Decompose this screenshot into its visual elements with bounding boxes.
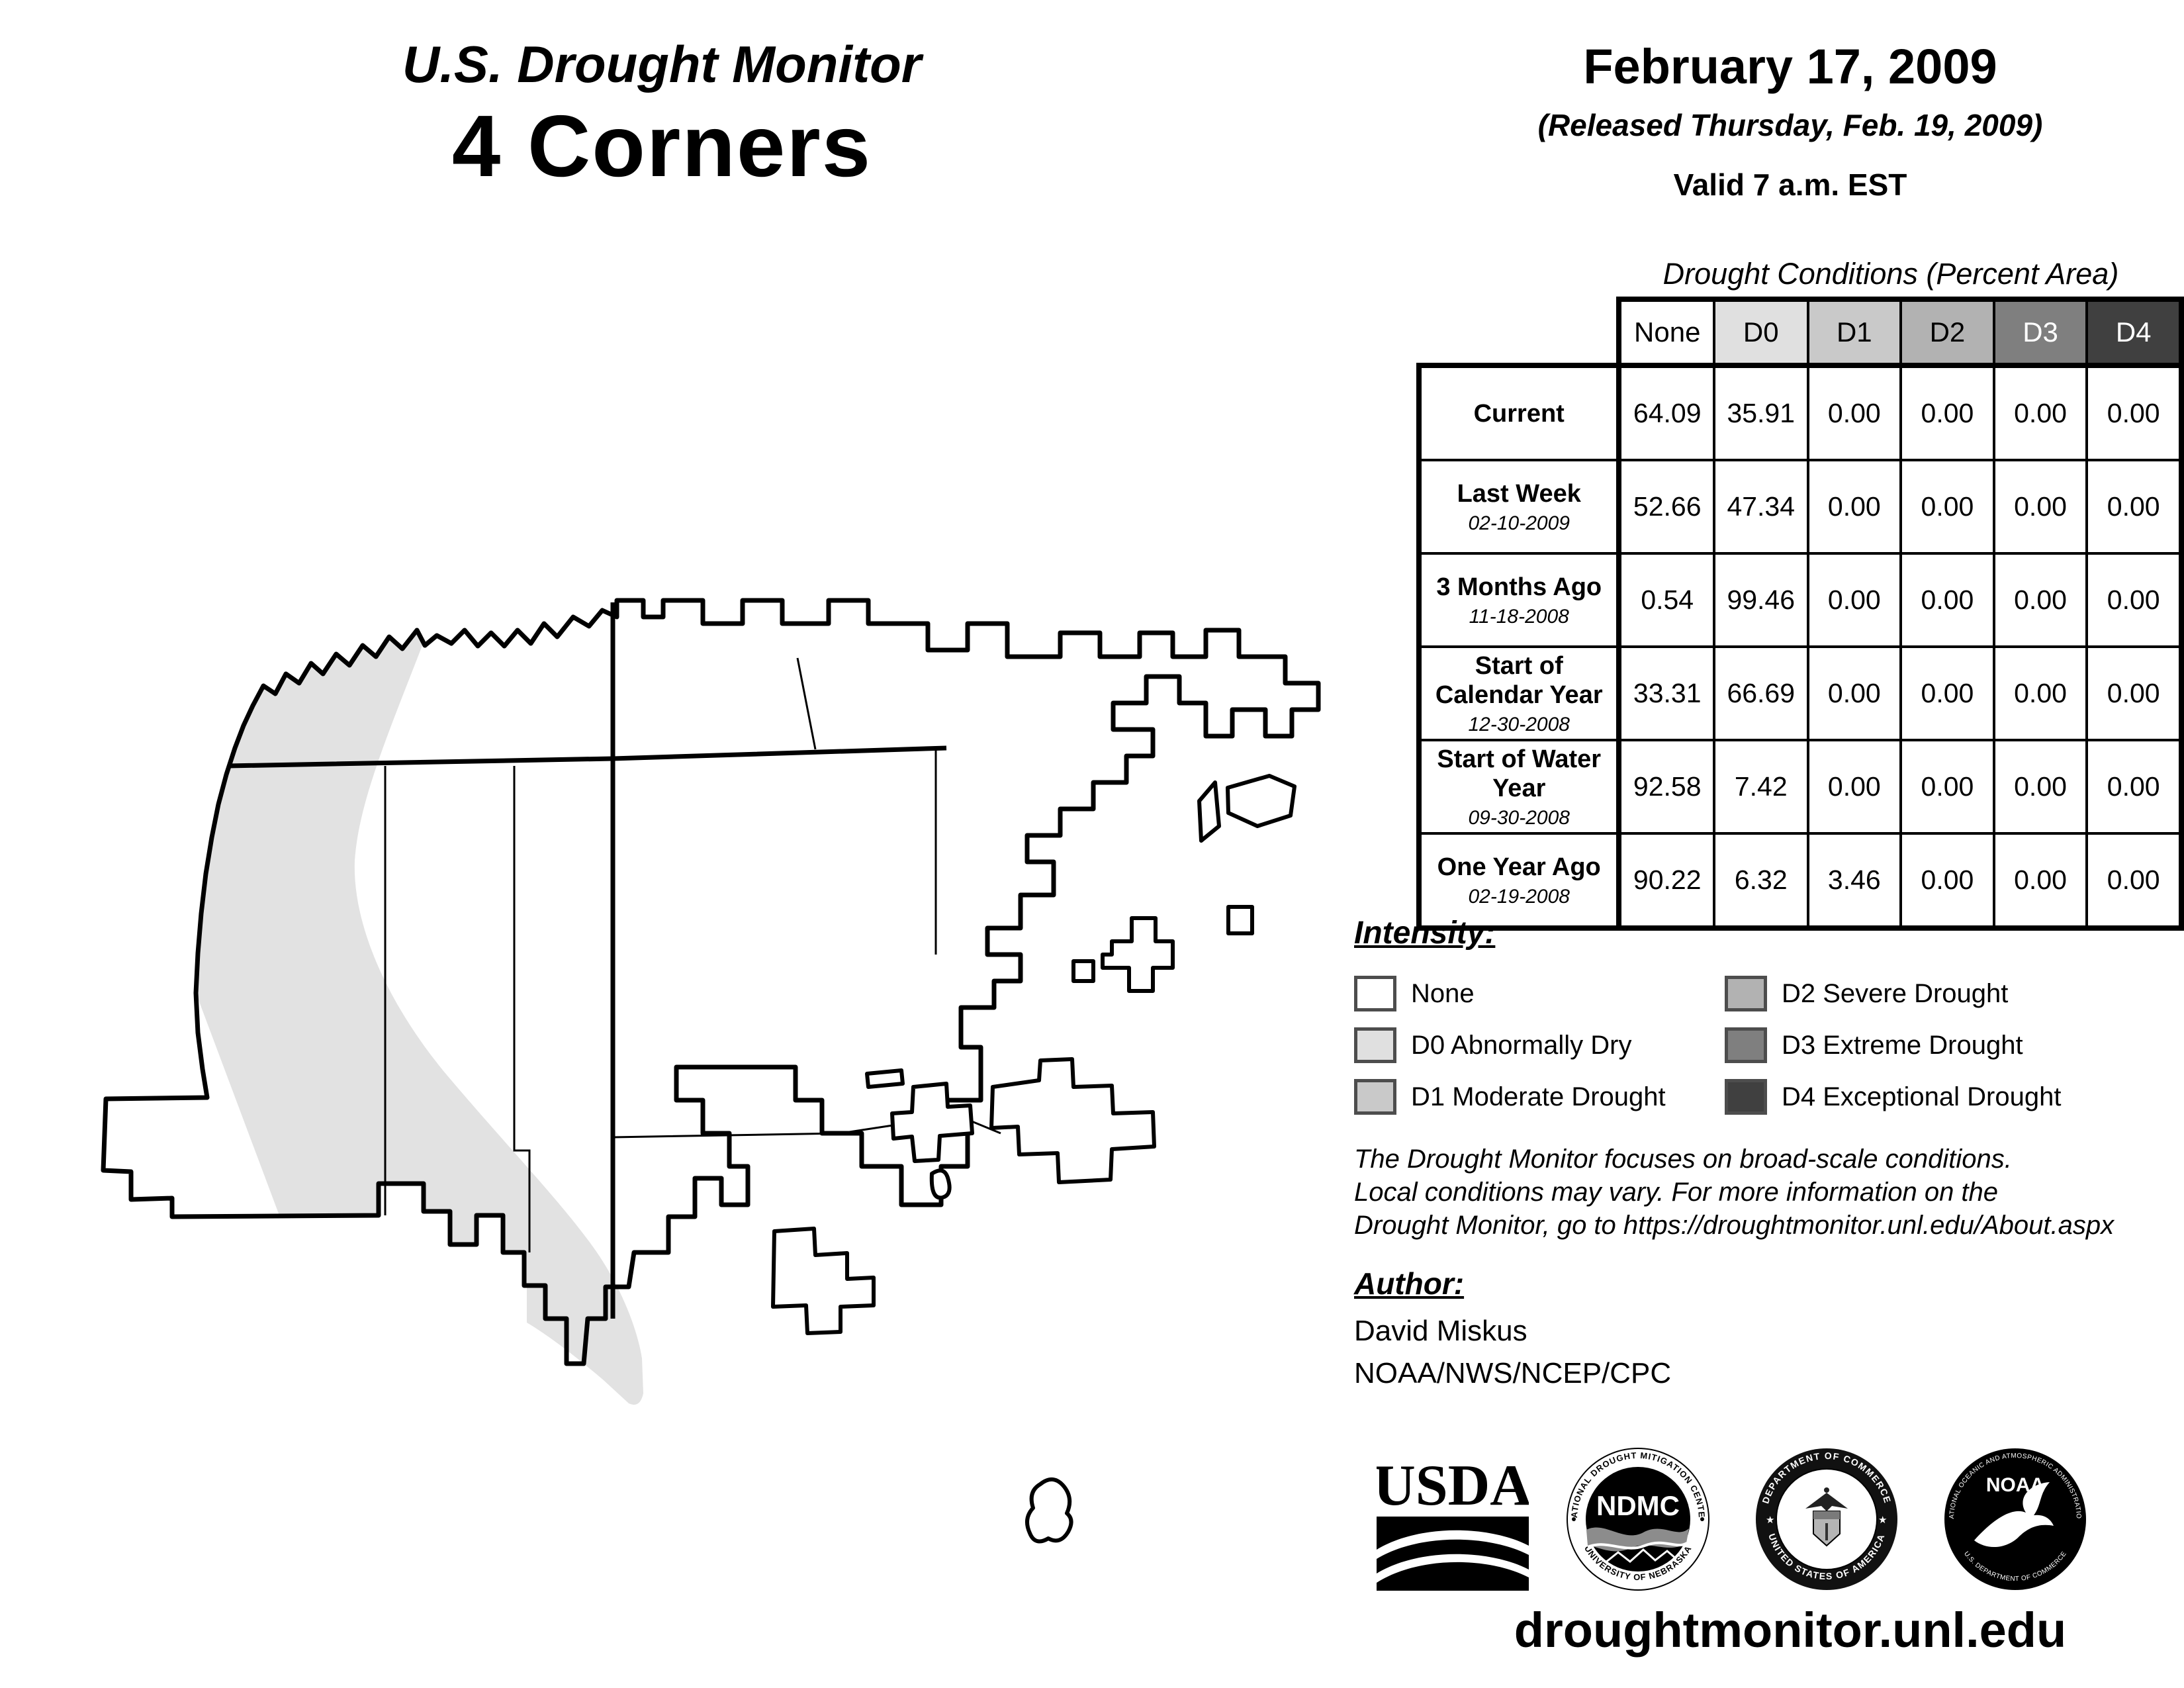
doc-star-left: ★ xyxy=(1766,1515,1774,1526)
disclaimer-line: Drought Monitor, go to https://droughtmo… xyxy=(1354,1209,2181,1242)
value-cell: 0.00 xyxy=(1901,365,1994,460)
release-date: (Released Thursday, Feb. 19, 2009) xyxy=(1416,107,2164,143)
table-corner-cell xyxy=(1419,299,1619,365)
value-cell: 0.00 xyxy=(1808,365,1901,460)
table-row: One Year Ago02-19-2008 90.22 6.32 3.46 0… xyxy=(1419,833,2181,928)
drought-map xyxy=(79,583,1337,1615)
legend-item-d3: D3 Extreme Drought xyxy=(1725,1019,2184,1071)
legend-swatch-d1 xyxy=(1354,1079,1396,1115)
author-name: David Miskus xyxy=(1354,1315,1527,1348)
legend-label: None xyxy=(1411,979,1475,1009)
value-cell: 0.54 xyxy=(1619,553,1714,647)
website-url: droughtmonitor.unl.edu xyxy=(1416,1602,2164,1658)
value-cell: 0.00 xyxy=(2087,460,2181,553)
map-date: February 17, 2009 xyxy=(1416,38,2164,95)
ndmc-logo: NATIONAL DROUGHT MITIGATION CENTER UNIVE… xyxy=(1565,1446,1711,1592)
value-cell: 0.00 xyxy=(1808,553,1901,647)
value-cell: 52.66 xyxy=(1619,460,1714,553)
table-caption: Drought Conditions (Percent Area) xyxy=(1615,257,2167,291)
legend-item-none: None xyxy=(1354,968,1725,1019)
value-cell: 90.22 xyxy=(1619,833,1714,928)
table-row: Start of Calendar Year12-30-2008 33.31 6… xyxy=(1419,647,2181,740)
value-cell: 0.00 xyxy=(1994,833,2087,928)
legend-swatch-none xyxy=(1354,976,1396,1011)
value-cell: 0.00 xyxy=(1994,553,2087,647)
legend-heading: Intensity: xyxy=(1354,915,1495,951)
col-header-d1: D1 xyxy=(1808,299,1901,365)
value-cell: 35.91 xyxy=(1714,365,1808,460)
legend-swatch-d2 xyxy=(1725,976,1767,1011)
doc-star-right: ★ xyxy=(1878,1515,1887,1526)
col-header-d2: D2 xyxy=(1901,299,1994,365)
value-cell: 0.00 xyxy=(2087,740,2181,833)
legend-label: D2 Severe Drought xyxy=(1782,979,2008,1009)
value-cell: 0.00 xyxy=(1901,553,1994,647)
value-cell: 3.46 xyxy=(1808,833,1901,928)
value-cell: 7.42 xyxy=(1714,740,1808,833)
usda-wordmark: USDA xyxy=(1377,1454,1529,1518)
value-cell: 0.00 xyxy=(1808,740,1901,833)
legend-item-d1: D1 Moderate Drought xyxy=(1354,1071,1725,1123)
value-cell: 0.00 xyxy=(2087,833,2181,928)
value-cell: 0.00 xyxy=(1901,460,1994,553)
value-cell: 0.00 xyxy=(1994,365,2087,460)
row-label-cell: One Year Ago02-19-2008 xyxy=(1419,833,1619,928)
legend-swatch-d0 xyxy=(1354,1027,1396,1063)
legend-item-d0: D0 Abnormally Dry xyxy=(1354,1019,1725,1071)
value-cell: 64.09 xyxy=(1619,365,1714,460)
legend: None D0 Abnormally Dry D1 Moderate Droug… xyxy=(1354,968,2184,1123)
usda-logo: USDA xyxy=(1377,1453,1529,1595)
value-cell: 0.00 xyxy=(1901,833,1994,928)
row-label-cell: Current xyxy=(1419,365,1619,460)
value-cell: 0.00 xyxy=(2087,365,2181,460)
value-cell: 0.00 xyxy=(2087,647,2181,740)
value-cell: 0.00 xyxy=(1901,647,1994,740)
author-org: NOAA/NWS/NCEP/CPC xyxy=(1354,1357,1671,1390)
disclaimer: The Drought Monitor focuses on broad-sca… xyxy=(1354,1143,2181,1242)
legend-item-d4: D4 Exceptional Drought xyxy=(1725,1071,2184,1123)
legend-label: D0 Abnormally Dry xyxy=(1411,1031,1631,1060)
table-row: Current 64.09 35.91 0.00 0.00 0.00 0.00 xyxy=(1419,365,2181,460)
value-cell: 47.34 xyxy=(1714,460,1808,553)
value-cell: 6.32 xyxy=(1714,833,1808,928)
legend-item-d2: D2 Severe Drought xyxy=(1725,968,2184,1019)
col-header-d4: D4 xyxy=(2087,299,2181,365)
value-cell: 0.00 xyxy=(1994,740,2087,833)
value-cell: 0.00 xyxy=(1901,740,1994,833)
row-label-cell: Start of Water Year09-30-2008 xyxy=(1419,740,1619,833)
value-cell: 66.69 xyxy=(1714,647,1808,740)
value-cell: 0.00 xyxy=(1994,647,2087,740)
table-row: 3 Months Ago11-18-2008 0.54 99.46 0.00 0… xyxy=(1419,553,2181,647)
row-label-cell: Last Week02-10-2009 xyxy=(1419,460,1619,553)
legend-swatch-d4 xyxy=(1725,1079,1767,1115)
value-cell: 99.46 xyxy=(1714,553,1808,647)
row-label-cell: Start of Calendar Year12-30-2008 xyxy=(1419,647,1619,740)
value-cell: 92.58 xyxy=(1619,740,1714,833)
value-cell: 0.00 xyxy=(1994,460,2087,553)
disclaimer-line: Local conditions may vary. For more info… xyxy=(1354,1176,2181,1209)
disclaimer-line: The Drought Monitor focuses on broad-sca… xyxy=(1354,1143,2181,1176)
row-label-cell: 3 Months Ago11-18-2008 xyxy=(1419,553,1619,647)
value-cell: 0.00 xyxy=(1808,647,1901,740)
value-cell: 33.31 xyxy=(1619,647,1714,740)
value-cell: 0.00 xyxy=(2087,553,2181,647)
report-title: U.S. Drought Monitor xyxy=(0,34,1324,95)
valid-time: Valid 7 a.m. EST xyxy=(1416,167,2164,203)
col-header-d0: D0 xyxy=(1714,299,1808,365)
noaa-logo: NATIONAL OCEANIC AND ATMOSPHERIC ADMINIS… xyxy=(1942,1446,2088,1592)
table-row: Last Week02-10-2009 52.66 47.34 0.00 0.0… xyxy=(1419,460,2181,553)
table-header-row: None D0 D1 D2 D3 D4 xyxy=(1419,299,2181,365)
col-header-none: None xyxy=(1619,299,1714,365)
author-heading: Author: xyxy=(1354,1266,1464,1301)
drought-conditions-table: None D0 D1 D2 D3 D4 Current 64.09 35.91 … xyxy=(1416,297,2184,931)
value-cell: 0.00 xyxy=(1808,460,1901,553)
legend-label: D1 Moderate Drought xyxy=(1411,1082,1666,1112)
legend-label: D3 Extreme Drought xyxy=(1782,1031,2023,1060)
ndmc-center-text: NDMC xyxy=(1596,1490,1680,1521)
col-header-d3: D3 xyxy=(1994,299,2087,365)
department-of-commerce-seal: DEPARTMENT OF COMMERCE UNITED STATES OF … xyxy=(1754,1446,1899,1592)
region-title: 4 Corners xyxy=(0,96,1324,196)
legend-label: D4 Exceptional Drought xyxy=(1782,1082,2061,1112)
legend-swatch-d3 xyxy=(1725,1027,1767,1063)
table-row: Start of Water Year09-30-2008 92.58 7.42… xyxy=(1419,740,2181,833)
